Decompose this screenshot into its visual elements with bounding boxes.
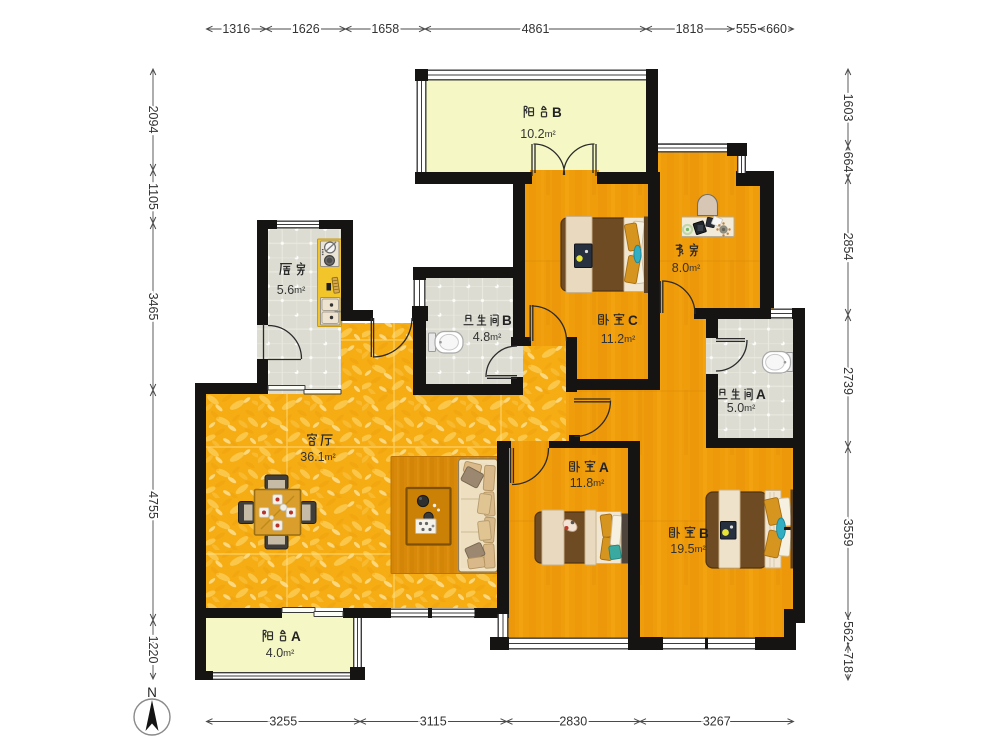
svg-text:1220: 1220 (146, 636, 160, 664)
svg-text:B: B (502, 313, 512, 328)
svg-text:4755: 4755 (146, 491, 160, 519)
svg-text:562: 562 (841, 621, 855, 642)
svg-text:555: 555 (736, 22, 757, 36)
svg-text:1818: 1818 (676, 22, 704, 36)
svg-text:N: N (147, 685, 157, 700)
svg-text:19.5m²: 19.5m² (670, 542, 705, 556)
svg-text:3559: 3559 (841, 519, 855, 547)
svg-text:B: B (552, 105, 562, 120)
svg-text:2094: 2094 (146, 106, 160, 134)
svg-text:B: B (699, 526, 709, 541)
svg-text:4.0m²: 4.0m² (266, 646, 294, 660)
svg-text:10.2m²: 10.2m² (520, 127, 555, 141)
svg-text:660: 660 (766, 22, 787, 36)
svg-text:A: A (291, 629, 301, 644)
svg-text:2854: 2854 (841, 233, 855, 261)
svg-text:4861: 4861 (522, 22, 550, 36)
svg-text:1316: 1316 (222, 22, 250, 36)
svg-text:5.0m²: 5.0m² (727, 401, 755, 415)
svg-text:2830: 2830 (559, 715, 587, 729)
svg-text:3267: 3267 (703, 715, 731, 729)
svg-text:1658: 1658 (371, 22, 399, 36)
svg-text:3465: 3465 (146, 293, 160, 321)
svg-text:5.6m²: 5.6m² (277, 283, 305, 297)
svg-text:C: C (628, 313, 638, 328)
svg-text:718: 718 (841, 652, 855, 673)
svg-text:1626: 1626 (292, 22, 320, 36)
svg-text:1603: 1603 (841, 94, 855, 122)
svg-text:3255: 3255 (269, 715, 297, 729)
svg-text:4.8m²: 4.8m² (473, 330, 501, 344)
svg-text:A: A (599, 460, 609, 475)
svg-text:8.0m²: 8.0m² (672, 261, 700, 275)
svg-text:3115: 3115 (420, 715, 447, 729)
svg-text:664: 664 (841, 152, 855, 173)
svg-text:A: A (756, 387, 766, 402)
svg-text:11.8m²: 11.8m² (570, 476, 604, 490)
svg-text:1105: 1105 (146, 183, 160, 210)
svg-text:2739: 2739 (841, 367, 855, 395)
svg-text:11.2m²: 11.2m² (601, 332, 635, 346)
svg-text:36.1m²: 36.1m² (300, 450, 335, 464)
